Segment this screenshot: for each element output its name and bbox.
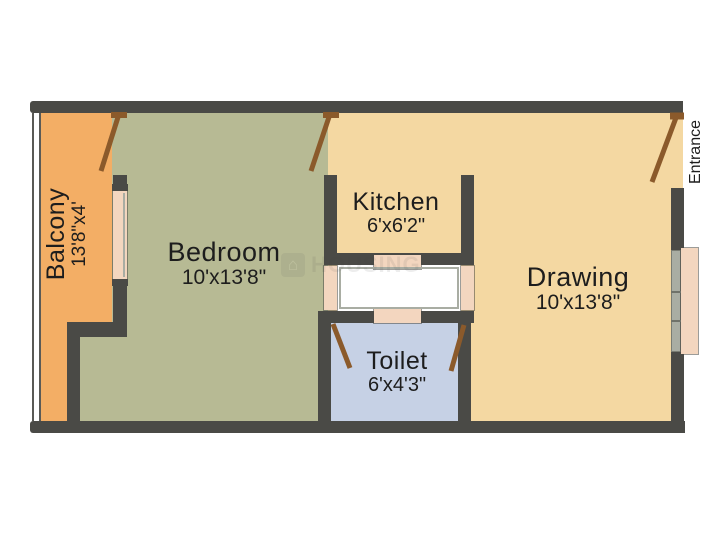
bedroom-name: Bedroom (144, 239, 304, 267)
floor-plan-page: { "plan": { "entrance_label": "Entrance"… (0, 0, 720, 540)
balcony-size: 13'8"x4' (70, 174, 89, 294)
drawing-label: Drawing 10'x13'8" (498, 264, 658, 313)
kitchen-label: Kitchen 6'x6'2" (326, 190, 466, 236)
watermark-text: HOUSING (311, 252, 421, 278)
drawing-name: Drawing (498, 264, 658, 292)
balcony-door-swing (101, 114, 119, 171)
kitchen-door-swing (311, 114, 330, 171)
balcony-label: Balcony 13'8"x4' (44, 174, 94, 294)
house-icon: ⌂ (281, 253, 305, 277)
kitchen-name: Kitchen (326, 190, 466, 216)
watermark: ⌂ HOUSING (281, 252, 421, 278)
bedroom-size: 10'x13'8" (144, 267, 304, 288)
drawing-size: 10'x13'8" (498, 292, 658, 313)
toilet-size: 6'x4'3" (327, 375, 467, 395)
kitchen-size: 6'x6'2" (326, 216, 466, 236)
entrance-door-swing (652, 115, 677, 182)
balcony-name: Balcony (44, 174, 70, 294)
toilet-name: Toilet (327, 349, 467, 375)
entrance-label: Entrance (687, 110, 705, 194)
toilet-label: Toilet 6'x4'3" (327, 349, 467, 395)
bedroom-label: Bedroom 10'x13'8" (144, 239, 304, 288)
